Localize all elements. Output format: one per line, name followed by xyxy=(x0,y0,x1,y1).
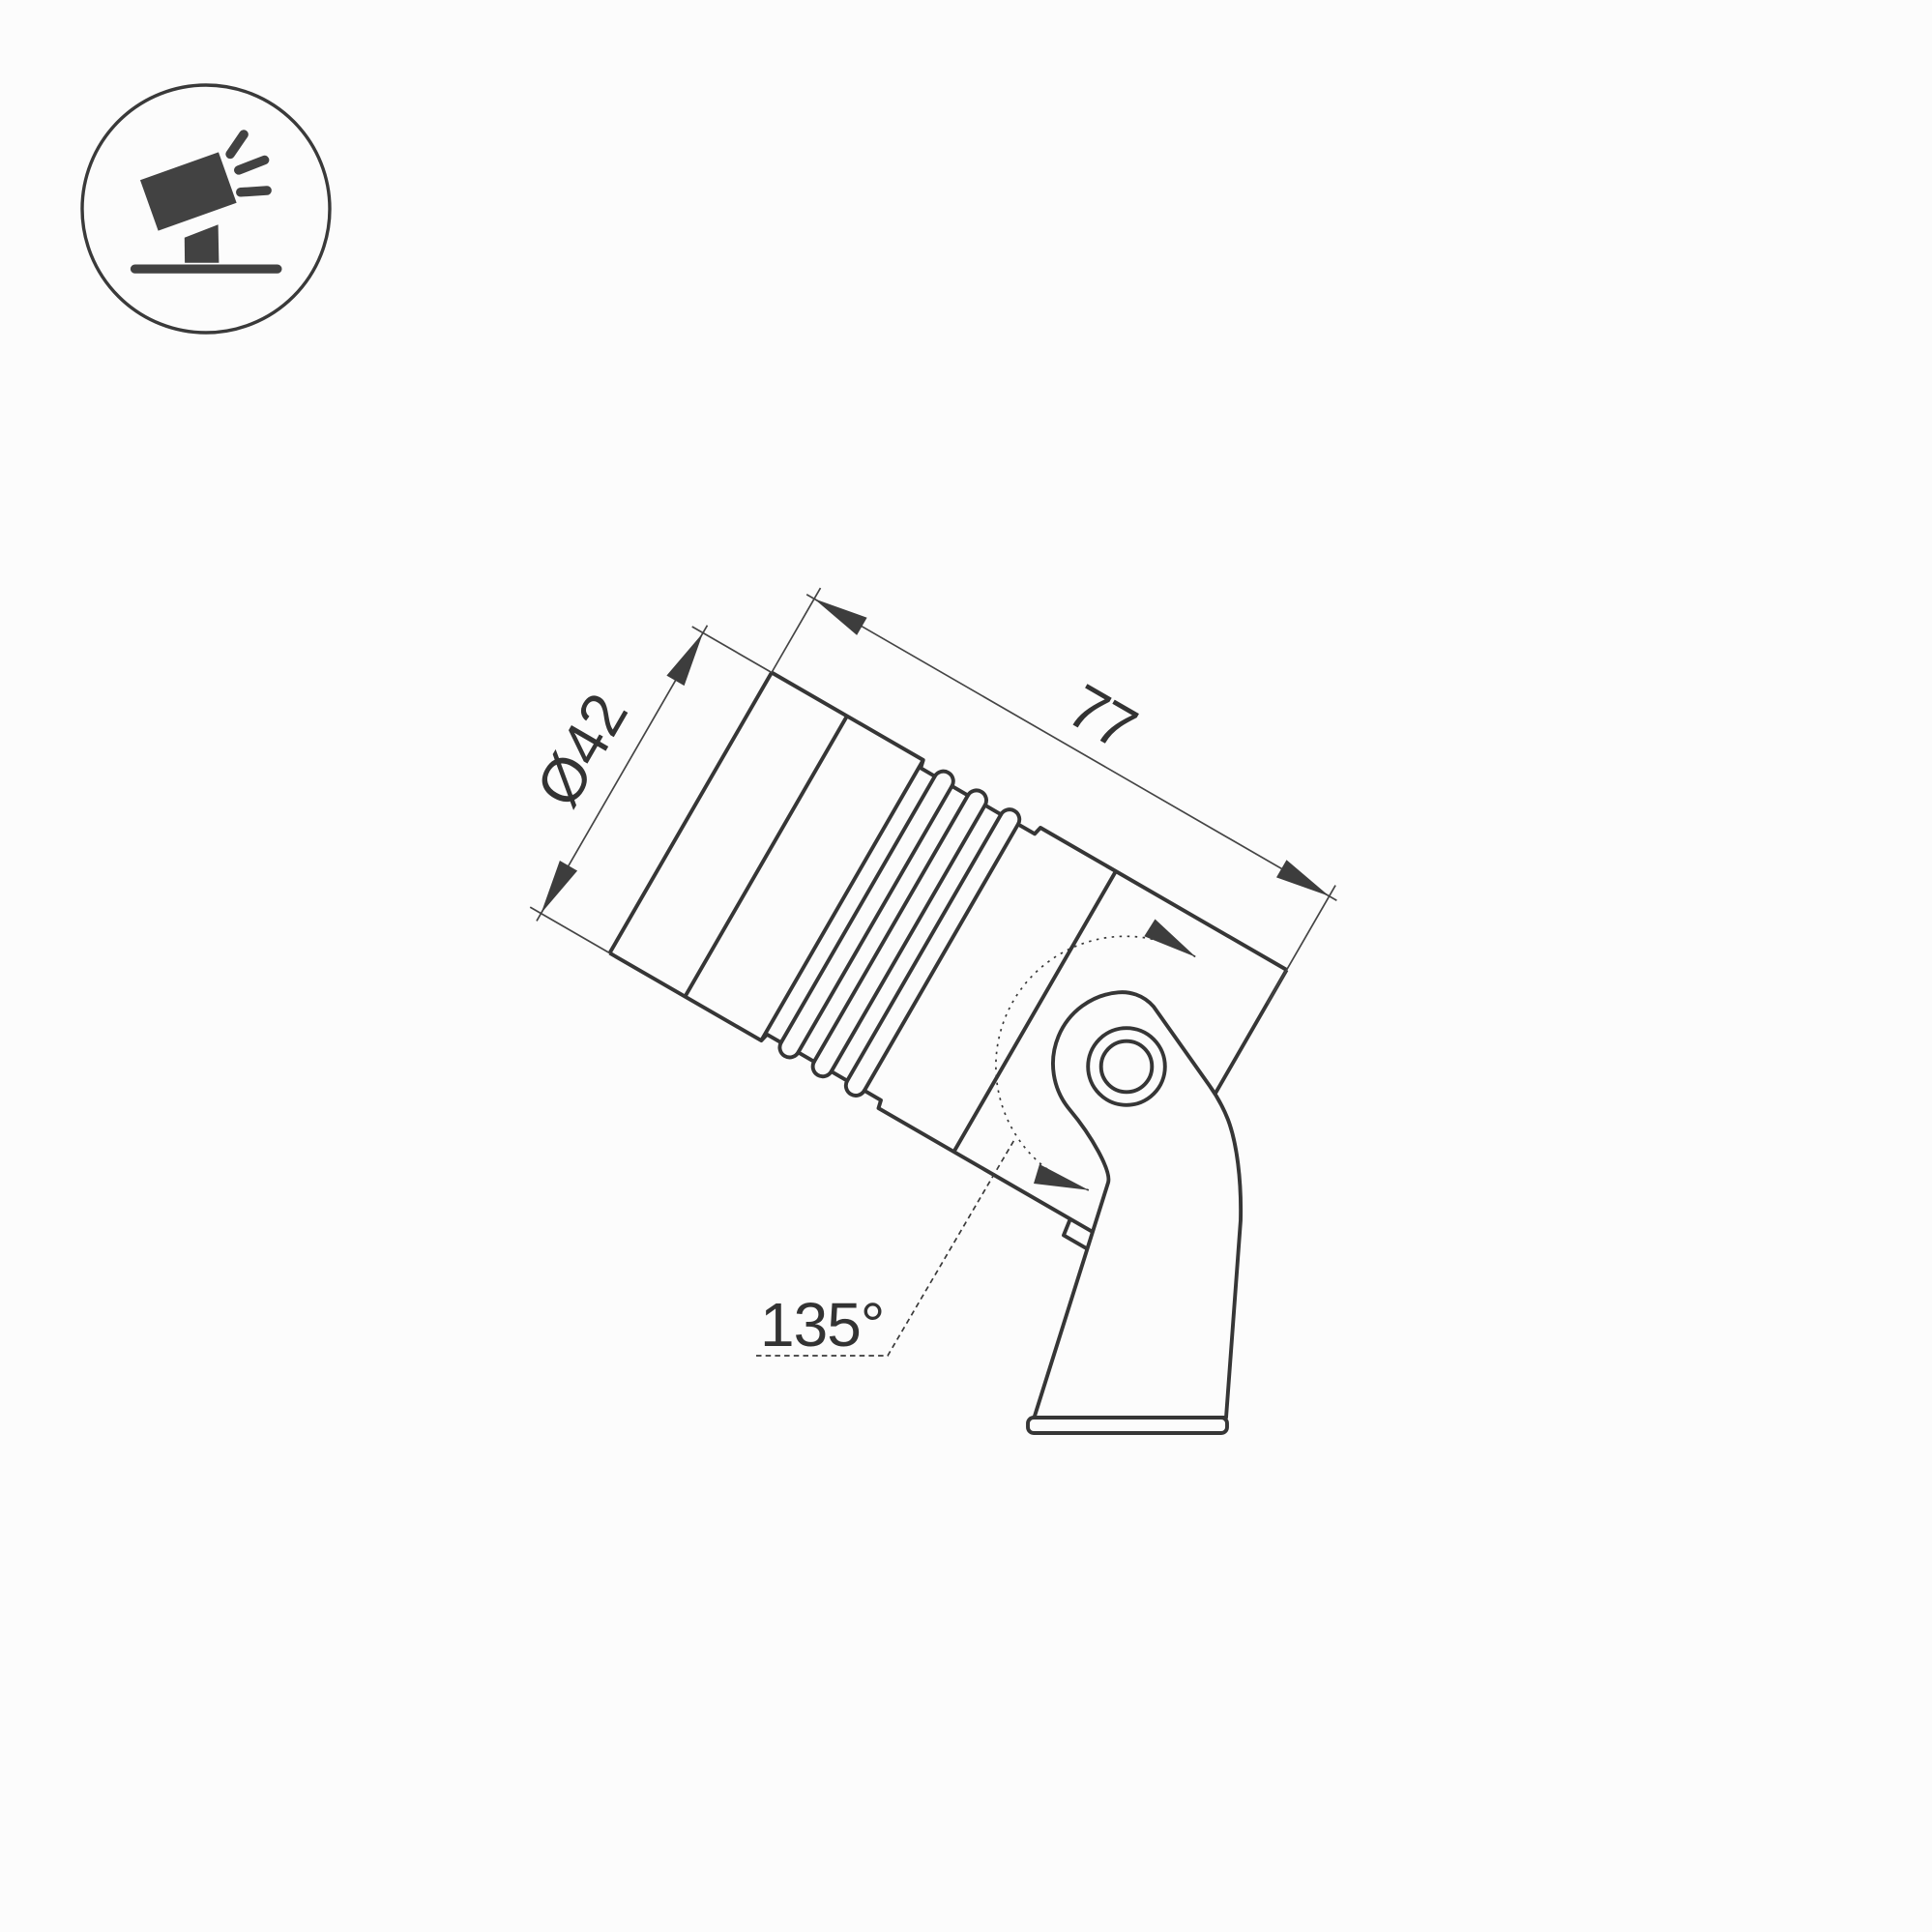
svg-text:135°: 135° xyxy=(760,1290,884,1360)
